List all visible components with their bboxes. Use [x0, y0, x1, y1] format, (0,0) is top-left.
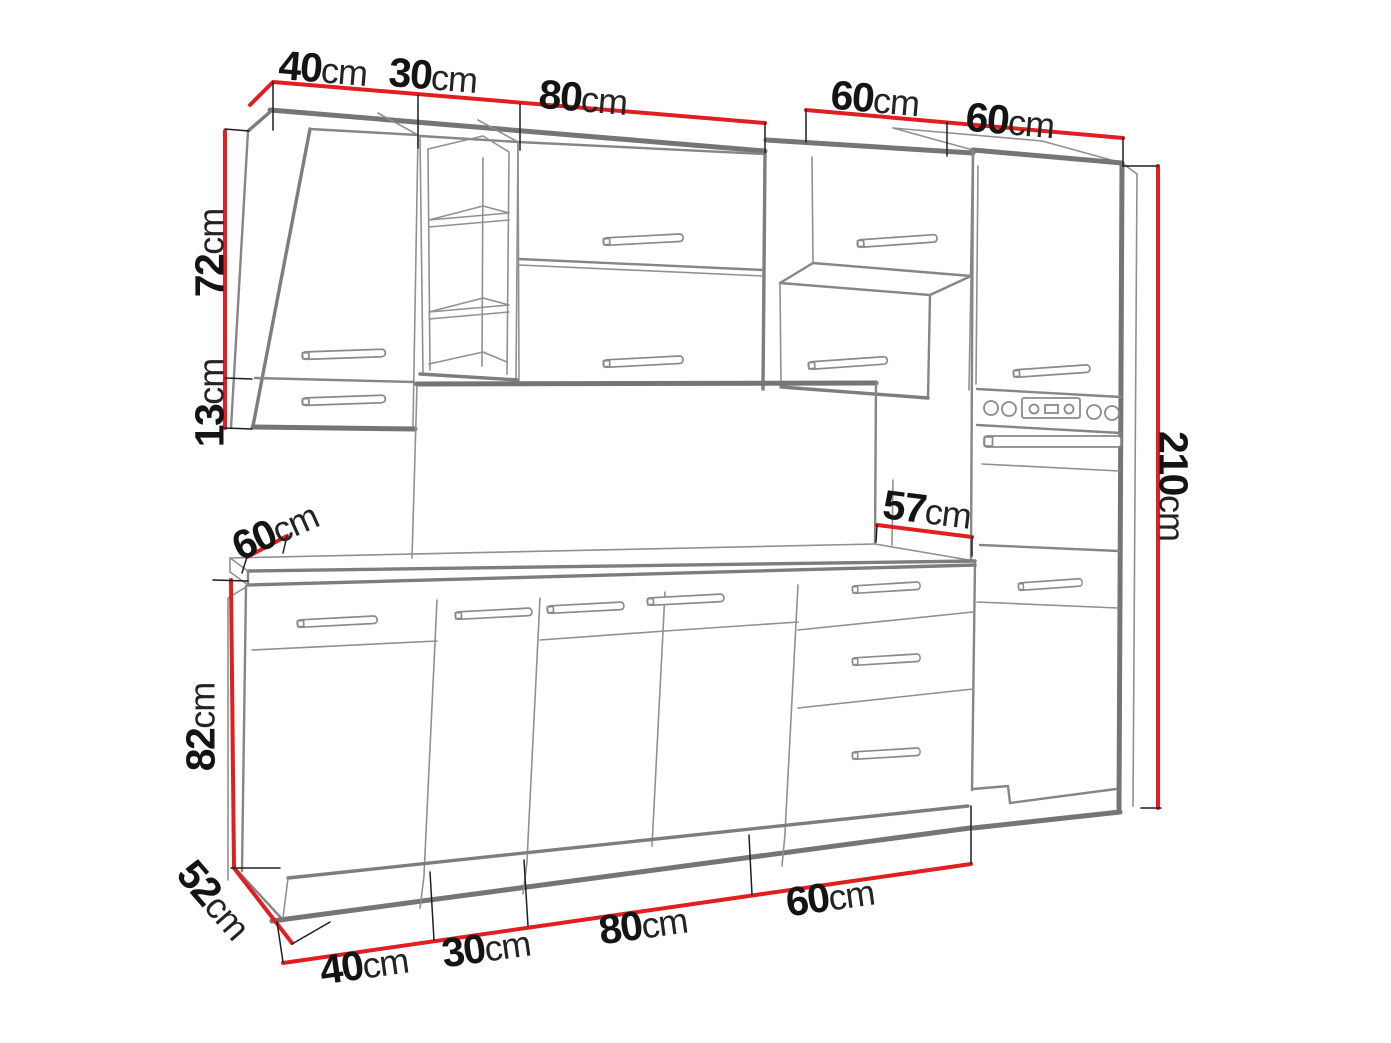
backsplash-panel — [412, 383, 893, 558]
oven-control-panel — [977, 389, 1121, 433]
dim-line-counter-depth-60 — [247, 536, 287, 557]
oven-door — [980, 436, 1121, 551]
oven-knob — [984, 401, 998, 415]
kitchen-dimension-diagram: 40cm 30cm 80cm 60cm 60cm 72cm 13cm 60cm … — [0, 0, 1391, 1043]
dimension-ticks — [213, 82, 1161, 962]
base-cabinet-row — [228, 582, 973, 921]
dimension-lines — [225, 82, 1158, 963]
oven-knob — [1087, 405, 1101, 419]
oven-knob — [1105, 406, 1119, 420]
wall-cabinet-60 — [766, 140, 973, 398]
wall-cabinet-80 — [518, 142, 765, 389]
dim-line-base-depth-52 — [234, 868, 292, 943]
countertop — [230, 544, 975, 585]
open-shelf-unit-30 — [420, 120, 518, 380]
dim-line-bottom — [283, 864, 971, 963]
dim-line-splash-57 — [877, 525, 972, 537]
dim-line-base-height-82 — [231, 580, 234, 868]
oven-knob — [1002, 402, 1016, 416]
kitchen-line-drawing — [0, 0, 1391, 1043]
tall-oven-cabinet-60 — [893, 128, 1137, 828]
